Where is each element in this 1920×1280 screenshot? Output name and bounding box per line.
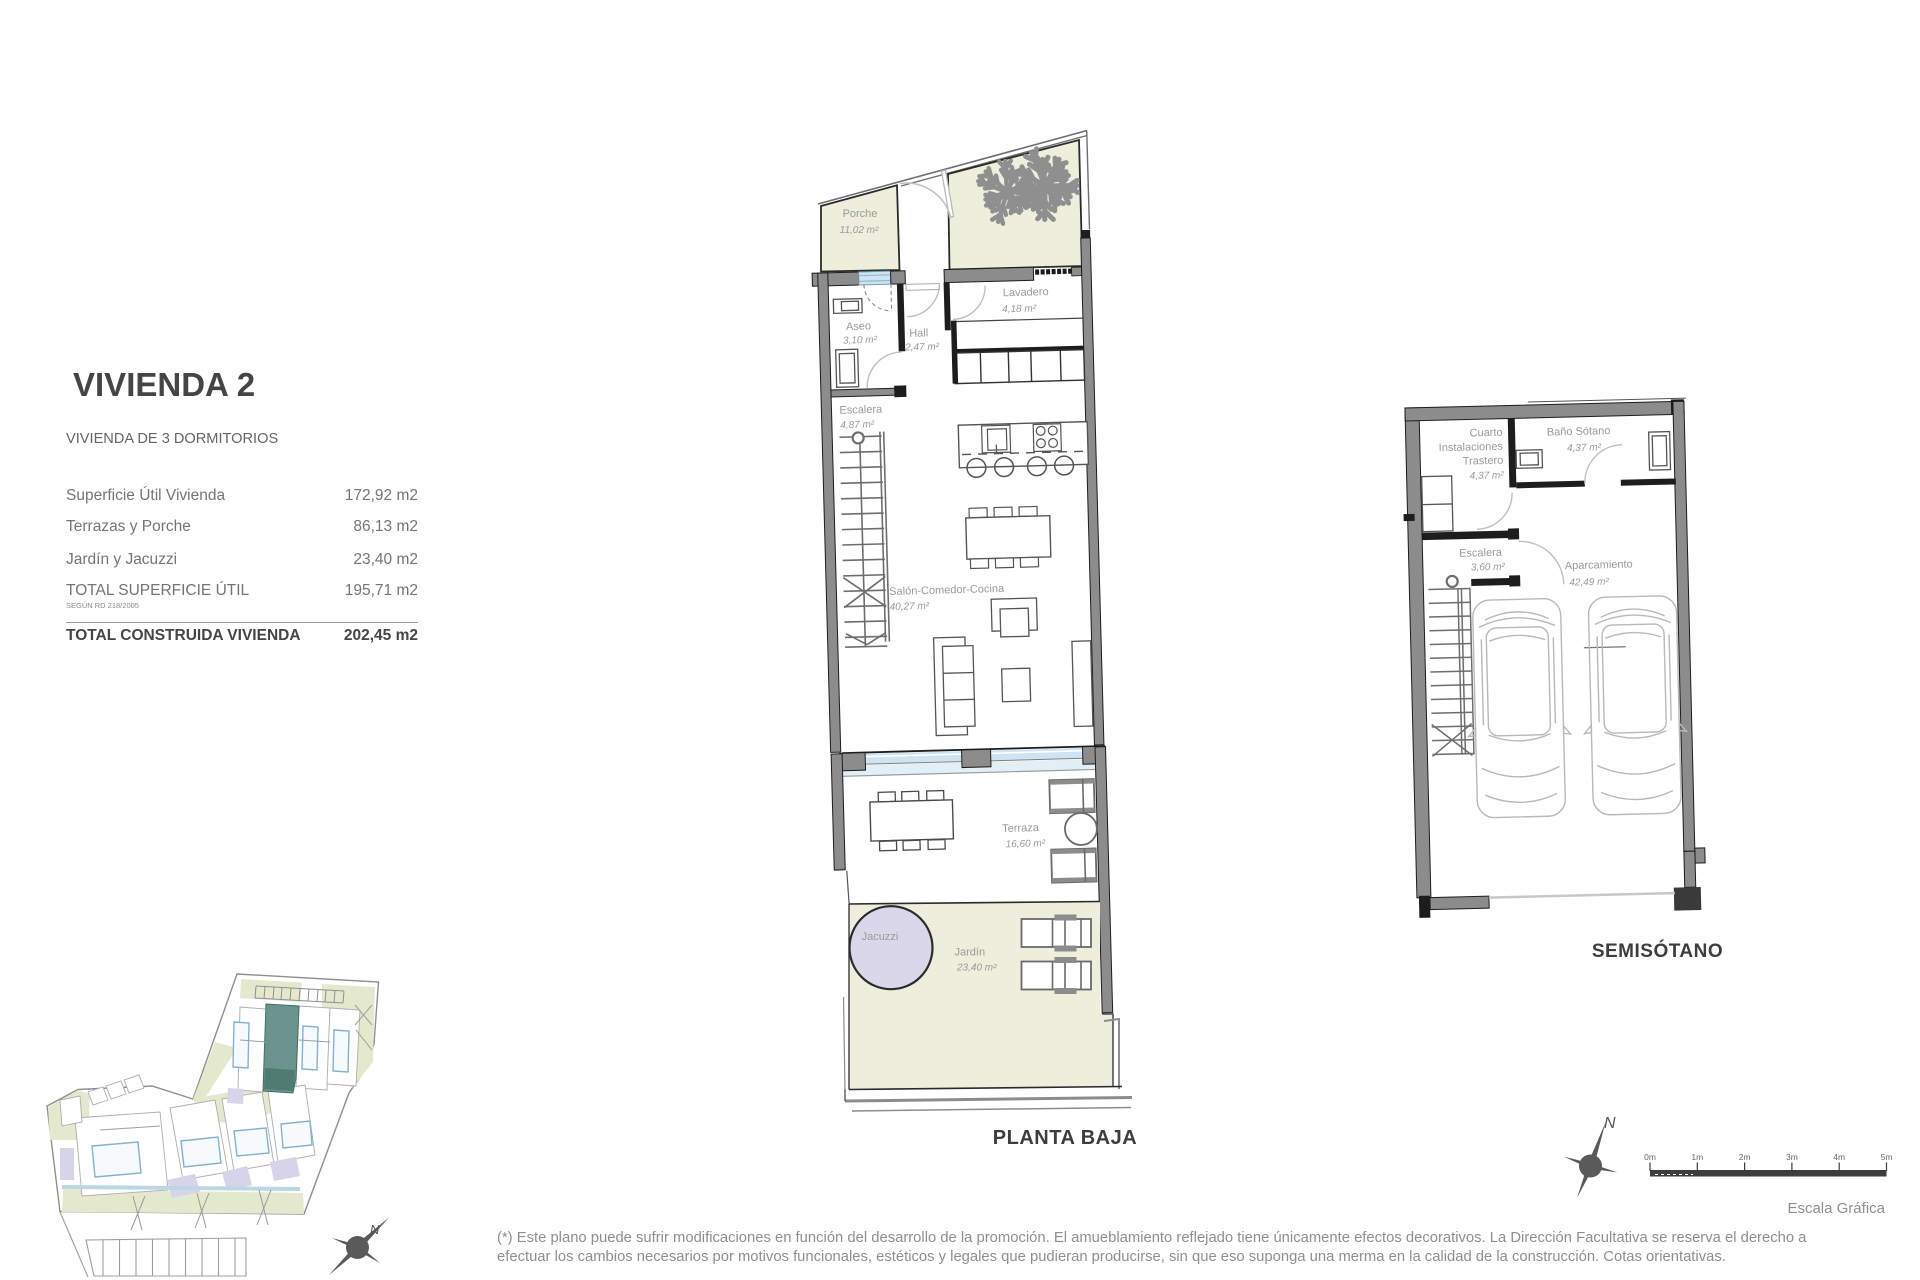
svg-text:Lavadero: Lavadero [1003,286,1049,299]
svg-text:16,60 m²: 16,60 m² [1005,838,1045,850]
svg-text:Jardín: Jardín [955,947,986,959]
svg-text:Porche: Porche [843,208,878,220]
svg-text:Aseo: Aseo [846,320,871,333]
svg-text:2,47 m²: 2,47 m² [904,342,940,354]
svg-text:4,37 m²: 4,37 m² [1567,442,1602,454]
svg-text:Aparcamiento: Aparcamiento [1565,559,1633,573]
svg-text:Escalera: Escalera [839,404,883,417]
svg-text:4,37 m²: 4,37 m² [1470,470,1505,482]
svg-text:Salón-Comedor-Cocina: Salón-Comedor-Cocina [889,583,1005,598]
svg-text:4,87 m²: 4,87 m² [840,419,875,431]
svg-text:Baño Sótano: Baño Sótano [1547,425,1611,439]
svg-text:0m: 0m [1644,1152,1656,1162]
svg-text:1m: 1m [1691,1152,1703,1162]
svg-text:3,10 m²: 3,10 m² [843,335,878,347]
svg-text:42,49 m²: 42,49 m² [1569,577,1609,589]
svg-text:Instalaciones: Instalaciones [1439,441,1504,455]
svg-text:Terraza: Terraza [1002,822,1040,835]
svg-text:11,02 m²: 11,02 m² [840,225,879,236]
svg-text:4,18 m²: 4,18 m² [1002,303,1037,315]
svg-text:N: N [370,1222,380,1237]
svg-text:4m: 4m [1833,1152,1845,1162]
svg-text:Jacuzzi: Jacuzzi [862,931,899,943]
svg-text:Hall: Hall [909,327,928,340]
svg-text:40,27 m²: 40,27 m² [890,601,930,613]
svg-text:Trastero: Trastero [1463,455,1504,468]
svg-text:23,40 m²: 23,40 m² [956,963,997,974]
svg-text:Escalera: Escalera [1459,547,1503,560]
svg-text:3,60 m²: 3,60 m² [1471,562,1506,574]
svg-text:Cuarto: Cuarto [1469,427,1502,440]
svg-text:2m: 2m [1739,1152,1751,1162]
svg-text:3m: 3m [1786,1152,1798,1162]
svg-text:5m: 5m [1881,1152,1893,1162]
svg-text:N: N [1604,1115,1616,1132]
